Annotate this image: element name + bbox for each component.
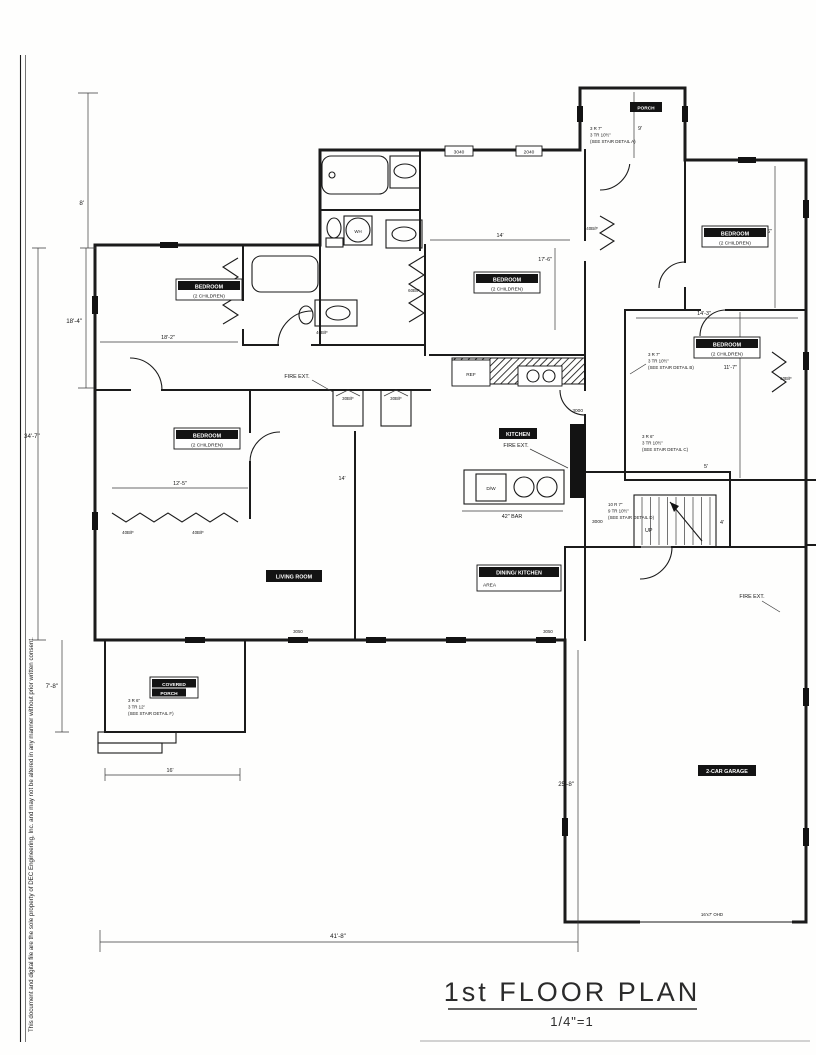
title-block: 1st FLOOR PLAN 1/4"=1 (444, 977, 701, 1029)
bathtub (322, 156, 388, 194)
room-label-porch: PORCH (630, 102, 662, 112)
room-label-bedroom-center: BEDROOM (2 CHILDREN) (474, 272, 540, 293)
svg-text:9 TR 10½": 9 TR 10½" (608, 509, 629, 514)
toilet (327, 218, 341, 238)
ref-label: REF (466, 372, 476, 378)
svg-text:(SEE STAIR DETAIL C): (SEE STAIR DETAIL C) (642, 447, 689, 452)
dim-bedroom-ul: 18'-2" (161, 335, 175, 341)
stair-note-f: 3 R 6" 3 TR 12" (SEE STAIR DETAIL F) (128, 698, 174, 716)
lavatory (392, 227, 416, 241)
svg-text:3 R 7": 3 R 7" (590, 126, 602, 131)
room-label-bedroom-lower-left: BEDROOM (2 CHILDREN) (174, 428, 240, 449)
dim-mid-right-width: 14'-3" (697, 311, 711, 317)
svg-text:PORCH: PORCH (637, 106, 655, 112)
svg-text:(SEE STAIR DETAIL F): (SEE STAIR DETAIL F) (128, 711, 174, 716)
svg-text:KITCHEN: KITCHEN (506, 432, 530, 438)
svg-text:(SEE STAIR DETAIL A): (SEE STAIR DETAIL A) (590, 139, 636, 144)
dim-left-porch: 7'-8" (46, 683, 58, 690)
sink-bowl (514, 477, 534, 497)
room-label-bedroom-mid-right: BEDROOM (2 CHILDREN) (694, 337, 760, 358)
lavatory (394, 164, 416, 178)
svg-text:BEDROOM: BEDROOM (493, 277, 522, 283)
door-label-bifold: 40B/F (192, 530, 204, 535)
dim-center-width: 14' (496, 233, 503, 239)
room-label-garage: 2-CAR GARAGE (698, 765, 756, 776)
svg-text:3 R 7": 3 R 7" (648, 352, 660, 357)
exterior-walls (95, 88, 806, 922)
svg-text:LIVING ROOM: LIVING ROOM (276, 575, 313, 581)
dim-center-depth: 17'-6" (538, 257, 552, 263)
fire-ext-label: FIRE EXT. (284, 374, 309, 380)
dim-stair-width: 4' (720, 520, 724, 526)
window-label-3050: 3050 (543, 629, 553, 634)
stair-note-c: 3 R 6" 3 TR 10½" (SEE STAIR DETAIL C) (642, 434, 689, 452)
fire-ext-label: FIRE EXT. (739, 594, 764, 600)
dim-covered-porch: 16' (166, 768, 173, 774)
svg-text:(2 CHILDREN): (2 CHILDREN) (191, 443, 223, 449)
dim-left-top: 8' (79, 200, 84, 207)
pantry-cabinet (570, 424, 586, 498)
window-label-3050: 3050 (293, 629, 303, 634)
svg-text:(2 CHILDREN): (2 CHILDREN) (711, 352, 743, 358)
svg-text:3 R 6": 3 R 6" (642, 434, 654, 439)
door-label-bifold: 30B/F (342, 396, 354, 401)
stair-note-a: 3 R 7" 3 TR 10½" (SEE STAIR DETAIL A) (590, 126, 636, 144)
svg-text:(2 CHILDREN): (2 CHILDREN) (193, 294, 225, 300)
drawing-scale: 1/4"=1 (550, 1014, 594, 1029)
dim-bar: 42" BAR (502, 514, 523, 520)
up-label: UP (645, 528, 653, 534)
vanity (315, 300, 357, 326)
svg-text:3 TR 12": 3 TR 12" (128, 705, 146, 710)
window-label-3000: 3000 (592, 519, 603, 525)
toilet (299, 306, 313, 324)
drawing-title: 1st FLOOR PLAN (444, 977, 701, 1007)
stair-note-b: 3 R 7" 3 TR 10½" (SEE STAIR DETAIL B) (630, 352, 694, 374)
door-label-bifold: 60B/F (780, 376, 792, 381)
dw-label: D/W (486, 486, 496, 492)
window-marks (92, 106, 809, 846)
scanned-floor-plan-sheet: This document and digital file are the s… (0, 0, 816, 1055)
svg-text:BEDROOM: BEDROOM (721, 231, 750, 237)
dim-left-upper: 18'-4" (66, 318, 82, 325)
dim-hall-width: 5' (704, 464, 708, 470)
dim-living-width: 14' (338, 476, 345, 482)
door-label-bifold: 30B/F (390, 396, 402, 401)
svg-text:(2 CHILDREN): (2 CHILDREN) (719, 241, 751, 247)
bath-fixtures (252, 156, 422, 326)
svg-text:COVERED: COVERED (162, 682, 186, 688)
porch-steps (98, 732, 176, 753)
vanity (386, 220, 422, 248)
room-label-bedroom-right: BEDROOM (2 CHILDREN) (702, 226, 768, 247)
dim-bedroom-mid-right: 11'-7" (724, 365, 737, 371)
svg-text:BEDROOM: BEDROOM (713, 342, 742, 348)
stair-note-d: 10 R 7" 9 TR 10½" (SEE STAIR DETAIL D) (608, 502, 655, 520)
svg-text:PORCH: PORCH (160, 691, 178, 697)
room-label-dining: DINING/ KITCHEN AREA (477, 565, 561, 591)
window-label-2040: 2040 (524, 150, 535, 156)
room-label-kitchen: KITCHEN (499, 428, 537, 439)
dim-porch-depth: 9' (638, 126, 642, 132)
svg-text:2-CAR GARAGE: 2-CAR GARAGE (706, 769, 748, 775)
bathtub (252, 256, 318, 292)
window-label-3040: 3040 (454, 150, 465, 156)
room-label-covered-porch: COVERED PORCH (150, 677, 198, 698)
svg-text:DINING/ KITCHEN: DINING/ KITCHEN (496, 571, 542, 577)
svg-text:(SEE STAIR DETAIL D): (SEE STAIR DETAIL D) (608, 515, 655, 520)
tub-drain (329, 172, 335, 178)
svg-text:BEDROOM: BEDROOM (195, 284, 224, 290)
door-label-bifold: 40B/F (122, 530, 134, 535)
lavatory (326, 306, 350, 320)
dim-left-main: 34'-7" (24, 433, 40, 440)
floor-plan-drawing: This document and digital file are the s… (0, 0, 816, 1055)
svg-text:3 R 6": 3 R 6" (128, 698, 140, 703)
main-stairs (634, 495, 716, 547)
door-label-bifold: 40B/F (316, 330, 328, 335)
porch-entry-gap (598, 156, 632, 164)
room-label-living-room: LIVING ROOM (266, 570, 322, 582)
door-label-bifold: 60B/F (408, 288, 420, 293)
garage-door: 16'x7' OHD (640, 912, 792, 927)
svg-text:10 R 7": 10 R 7" (608, 502, 623, 507)
svg-text:BEDROOM: BEDROOM (193, 433, 222, 439)
svg-text:3 TR 10½": 3 TR 10½" (648, 359, 669, 364)
toilet-tank (326, 238, 343, 247)
svg-text:(2 CHILDREN): (2 CHILDREN) (491, 287, 523, 293)
dimension-lines (32, 92, 798, 952)
door-label-bifold: 40B/F (586, 226, 598, 231)
fire-ext-label: FIRE EXT. (503, 443, 528, 449)
sink-bowl (537, 477, 557, 497)
garage-door-label: 16'x7' OHD (701, 912, 723, 917)
svg-text:AREA: AREA (483, 583, 497, 589)
property-note: This document and digital file are the s… (28, 637, 35, 1032)
svg-text:(SEE STAIR DETAIL B): (SEE STAIR DETAIL B) (648, 365, 694, 370)
dim-garage-side: 25'-8" (558, 781, 574, 788)
window-label-3000: 3000 (572, 408, 583, 414)
dim-bottom: 41'-8" (330, 933, 346, 940)
sheet-border (21, 55, 811, 1042)
dim-bedroom-ll: 12'-5" (173, 481, 187, 487)
room-label-bedroom-upper-left: BEDROOM (2 CHILDREN) (176, 279, 242, 300)
svg-text:3 TR 10½": 3 TR 10½" (590, 133, 611, 138)
wh-label: WH (354, 229, 361, 234)
svg-text:3 TR 10½": 3 TR 10½" (642, 441, 663, 446)
